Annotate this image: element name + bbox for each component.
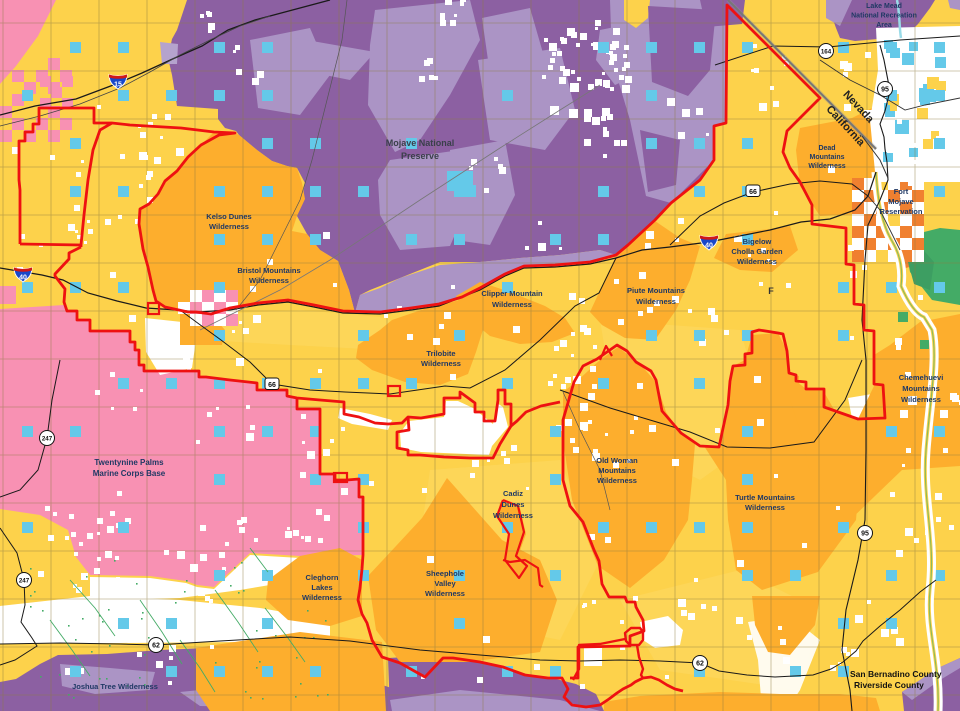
svg-text:Piute Mountains: Piute Mountains <box>627 286 685 295</box>
svg-text:Preserve: Preserve <box>401 151 439 161</box>
svg-text:62: 62 <box>696 661 704 668</box>
svg-text:Wilderness: Wilderness <box>808 163 845 170</box>
svg-text:Mountains: Mountains <box>598 466 636 475</box>
svg-text:Cholla Garden: Cholla Garden <box>731 247 783 256</box>
svg-text:Fort: Fort <box>894 187 909 196</box>
svg-text:Lakes: Lakes <box>311 583 332 592</box>
svg-text:Reservation: Reservation <box>880 207 923 216</box>
svg-text:Mountains: Mountains <box>902 384 940 393</box>
svg-text:Bigelow: Bigelow <box>743 237 772 246</box>
svg-text:95: 95 <box>861 531 869 538</box>
svg-text:15: 15 <box>114 82 122 89</box>
svg-text:Kelso Dunes: Kelso Dunes <box>206 212 251 221</box>
svg-text:Wilderness: Wilderness <box>737 257 777 266</box>
svg-text:Clipper Mountain: Clipper Mountain <box>481 289 543 298</box>
svg-text:Wilderness: Wilderness <box>302 593 342 602</box>
svg-text:Wilderness: Wilderness <box>901 395 941 404</box>
svg-text:Mountains: Mountains <box>810 154 845 161</box>
svg-text:Valley: Valley <box>434 579 456 588</box>
svg-text:66: 66 <box>268 382 276 389</box>
svg-text:Joshua Tree Wilderness: Joshua Tree Wilderness <box>72 682 158 691</box>
svg-text:Cleghorn: Cleghorn <box>306 573 339 582</box>
svg-text:Chemehuevi: Chemehuevi <box>899 373 944 382</box>
svg-text:Mojave National: Mojave National <box>386 138 455 148</box>
svg-text:Wilderness: Wilderness <box>425 589 465 598</box>
svg-text:40: 40 <box>705 243 713 250</box>
svg-text:Dunes: Dunes <box>502 500 525 509</box>
svg-text:Cadiz: Cadiz <box>503 489 523 498</box>
svg-text:Twentynine Palms: Twentynine Palms <box>94 458 164 467</box>
svg-text:Turtle Mountains: Turtle Mountains <box>735 493 795 502</box>
svg-text:Wilderness: Wilderness <box>636 297 676 306</box>
svg-text:164: 164 <box>821 49 832 56</box>
svg-text:Marine Corps Base: Marine Corps Base <box>93 469 166 478</box>
svg-text:Dead: Dead <box>818 145 835 152</box>
svg-text:F: F <box>768 286 774 296</box>
svg-text:40: 40 <box>19 275 27 282</box>
svg-text:66: 66 <box>749 189 757 196</box>
svg-text:Trilobite: Trilobite <box>426 349 455 358</box>
svg-text:95: 95 <box>881 87 889 94</box>
svg-text:Riverside County: Riverside County <box>854 680 924 690</box>
svg-text:Wilderness: Wilderness <box>745 503 785 512</box>
svg-text:Area: Area <box>876 22 892 29</box>
svg-text:National Recreation: National Recreation <box>851 13 917 20</box>
svg-text:62: 62 <box>152 643 160 650</box>
svg-text:Wilderness: Wilderness <box>421 359 461 368</box>
svg-text:Wilderness: Wilderness <box>249 276 289 285</box>
svg-text:Bristol Mountains: Bristol Mountains <box>237 266 300 275</box>
svg-text:Sheephole: Sheephole <box>426 569 464 578</box>
svg-text:247: 247 <box>19 578 30 585</box>
svg-text:Wilderness: Wilderness <box>209 222 249 231</box>
svg-text:San Bernadino County: San Bernadino County <box>850 669 942 679</box>
svg-text:Wilderness: Wilderness <box>597 476 637 485</box>
svg-text:Wilderness: Wilderness <box>493 511 533 520</box>
svg-text:Old Woman: Old Woman <box>596 456 638 465</box>
svg-text:Mojave: Mojave <box>888 197 913 206</box>
svg-text:247: 247 <box>42 436 53 443</box>
svg-text:Wilderness: Wilderness <box>492 300 532 309</box>
svg-text:Lake Mead: Lake Mead <box>866 3 902 10</box>
